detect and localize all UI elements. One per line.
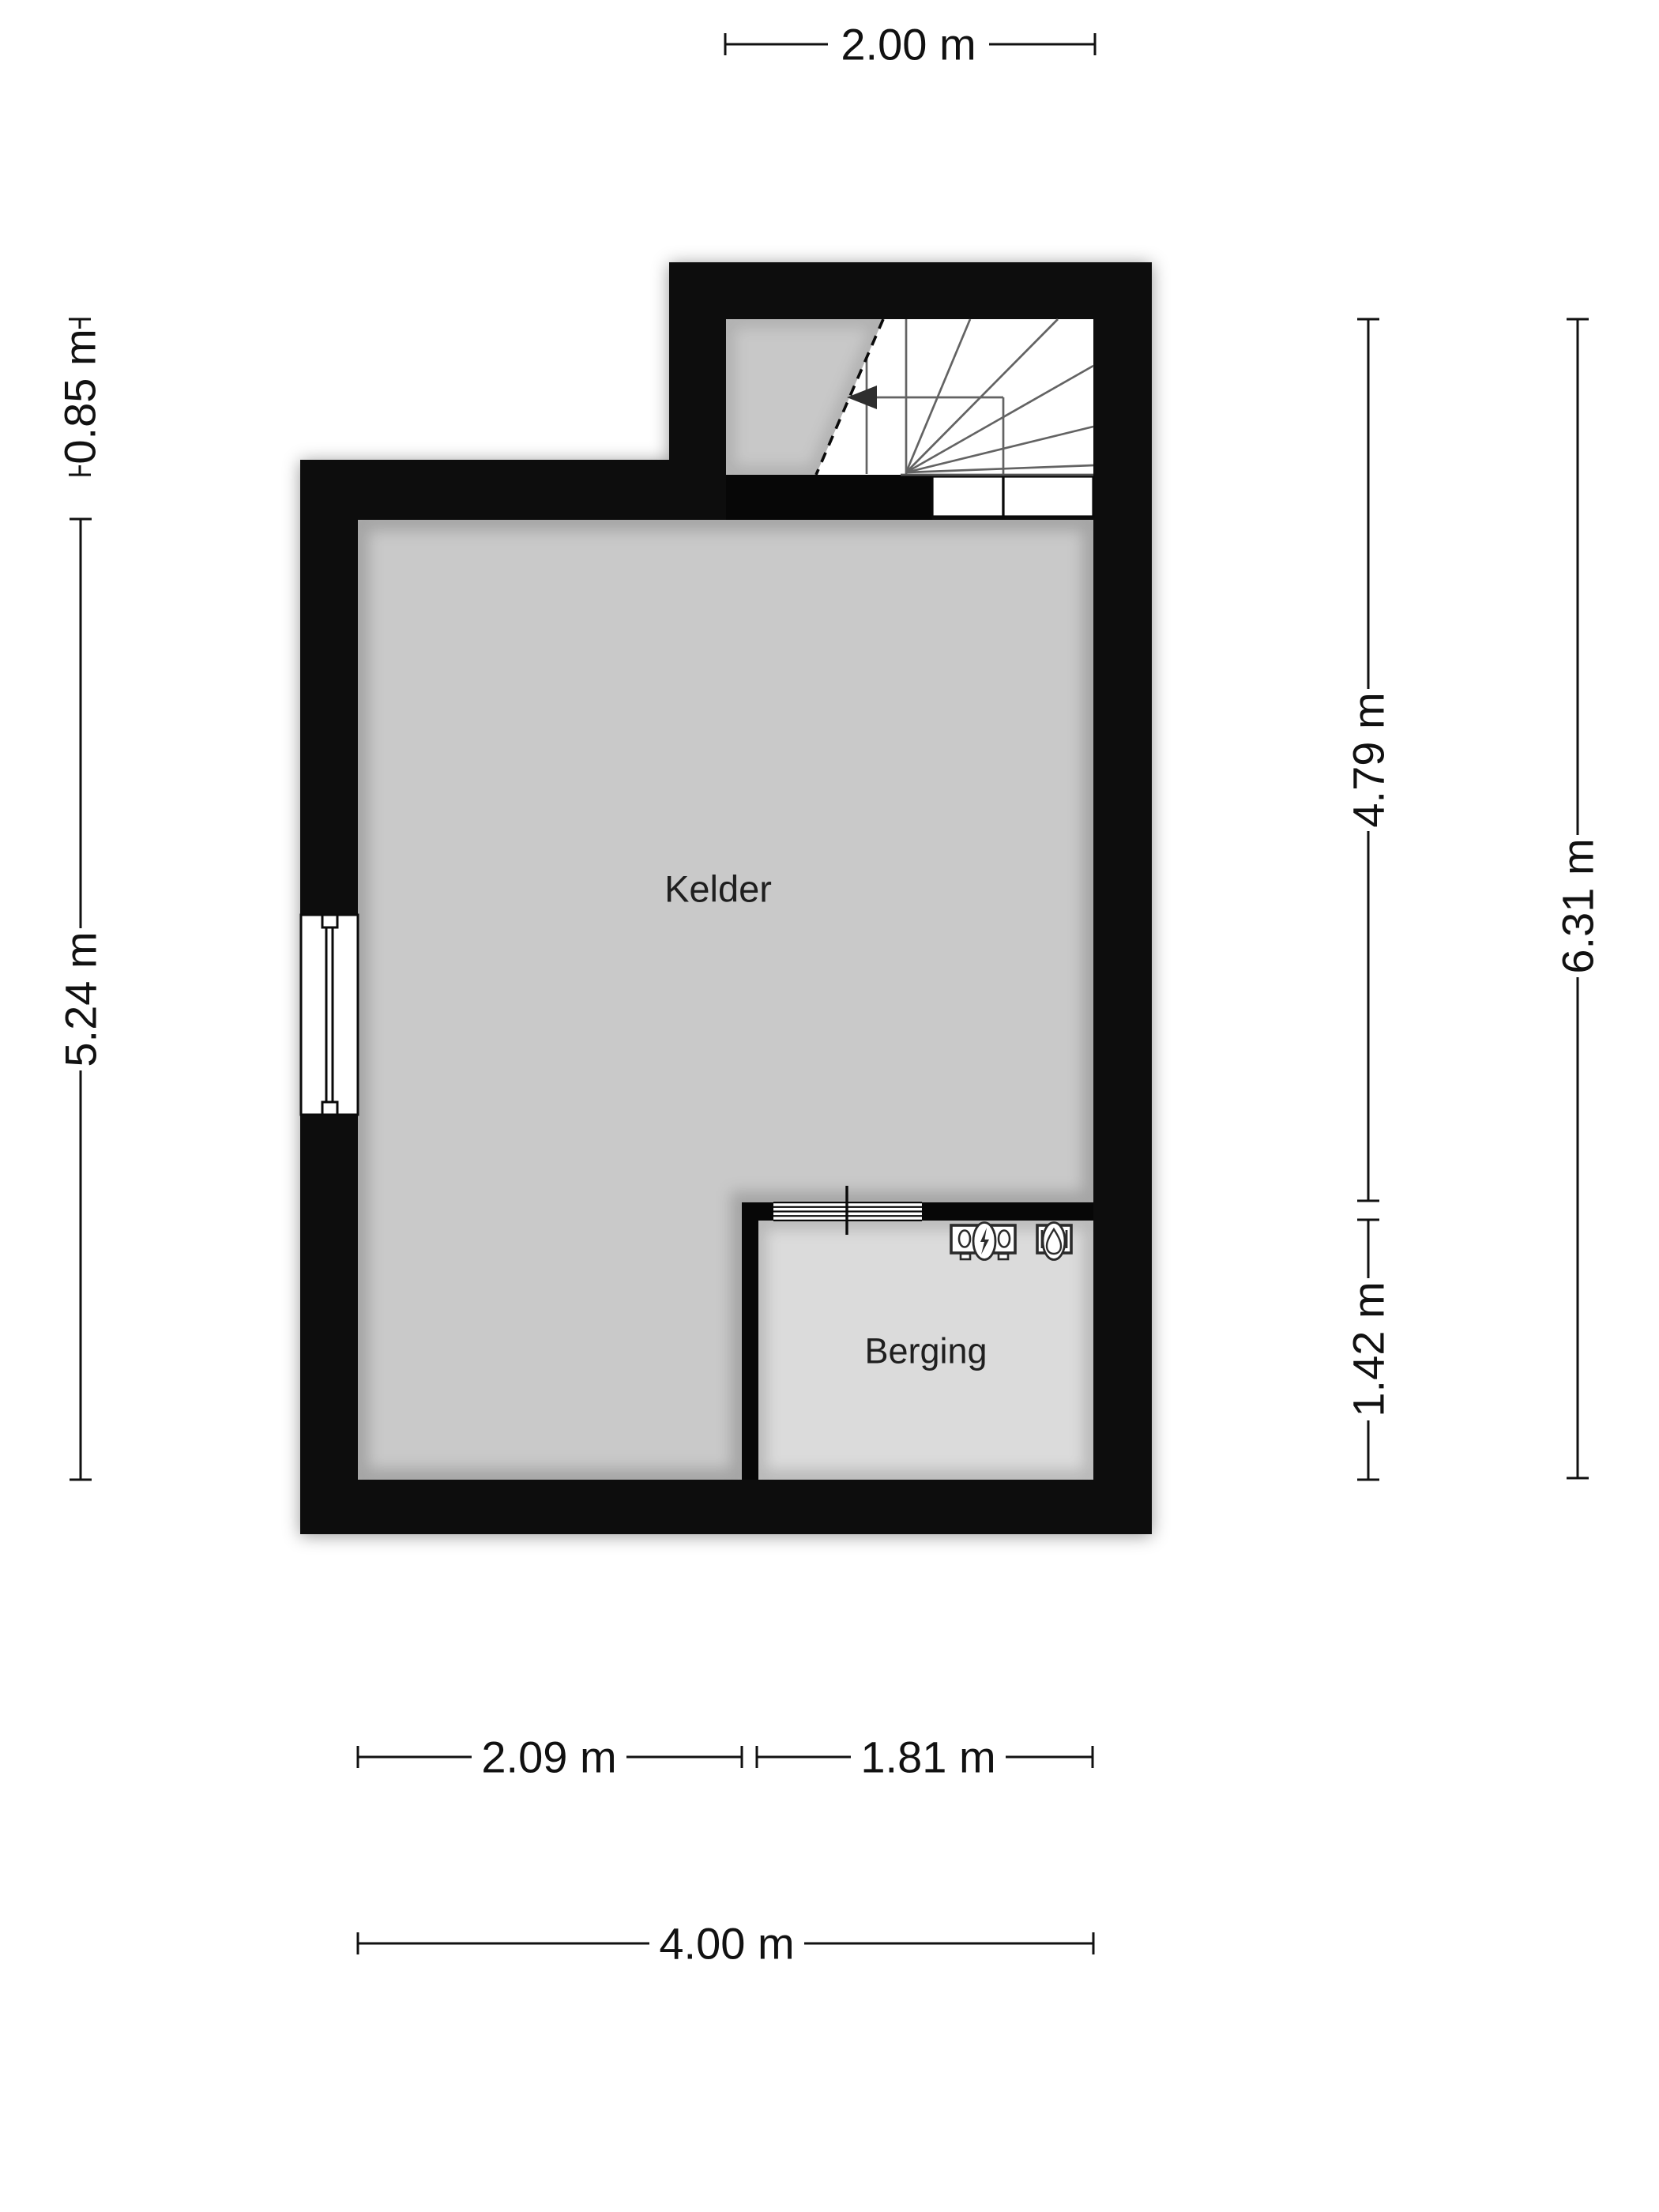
svg-text:6.31 m: 6.31 m <box>1553 838 1603 973</box>
svg-text:Berging: Berging <box>864 1331 987 1371</box>
svg-text:0.85 m: 0.85 m <box>55 329 105 464</box>
svg-text:4.00 m: 4.00 m <box>659 1919 794 1969</box>
svg-text:5.24 m: 5.24 m <box>56 931 106 1066</box>
svg-text:2.00 m: 2.00 m <box>841 20 976 70</box>
svg-text:4.79 m: 4.79 m <box>1344 692 1394 827</box>
svg-text:1.81 m: 1.81 m <box>860 1732 995 1782</box>
svg-text:Kelder: Kelder <box>664 868 772 910</box>
svg-text:2.09 m: 2.09 m <box>481 1732 616 1782</box>
svg-text:1.42 m: 1.42 m <box>1344 1281 1394 1416</box>
